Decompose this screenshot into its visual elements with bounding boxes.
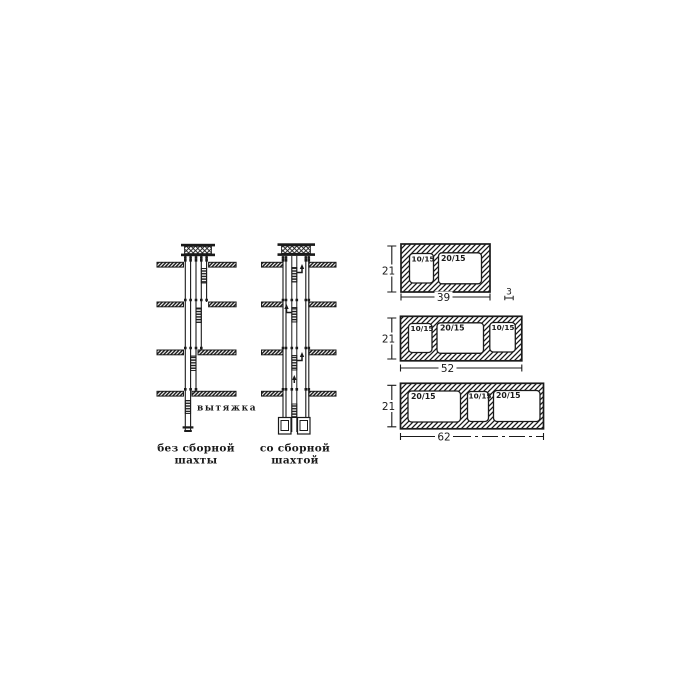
flow-arrow-floor2 <box>284 304 292 313</box>
opening-label: 10/15 <box>411 324 434 333</box>
exhaust-label: вытяжка <box>197 404 257 414</box>
height-dimension: 21 <box>382 318 396 359</box>
opening-label: 20/15 <box>411 392 436 401</box>
floor-slab <box>309 262 336 267</box>
satellite-grilles <box>292 268 297 418</box>
floor-slabs-right-diagram <box>262 262 337 396</box>
floor-slab <box>209 302 237 307</box>
floor-slab <box>157 391 184 396</box>
inlet-grille <box>196 308 201 323</box>
diagram-with-collection-shaft: со сборной шахтой <box>260 243 336 466</box>
dimension-label: 3 <box>506 288 512 298</box>
floor-slab <box>309 391 336 396</box>
floor-slab <box>262 302 284 307</box>
floor-slab <box>262 262 284 267</box>
floor-slab <box>209 262 237 267</box>
floor-slab <box>157 350 184 355</box>
dimension-label: 52 <box>441 363 454 375</box>
ventilation-scheme-figure: вытяжка без сборной шахты <box>0 0 700 700</box>
arrowhead-up <box>292 375 296 380</box>
opening-label: 20/15 <box>440 324 465 333</box>
block-cross-section-2: 10/15 20/15 10/15 21 52 <box>382 316 522 375</box>
flow-arrow-shaft-bottom <box>292 375 296 383</box>
left-diagram-caption-line1: без сборной <box>157 443 235 455</box>
diagram-without-collection-shaft: вытяжка без сборной шахты <box>157 244 257 467</box>
opening-label: 10/15 <box>412 255 435 264</box>
opening-label: 20/15 <box>441 254 466 263</box>
inlet-grille <box>292 268 297 283</box>
dimension-label: 39 <box>437 292 450 304</box>
right-diagram-caption-line2: шахтой <box>271 455 318 467</box>
left-diagram-caption-line2: шахты <box>175 455 218 467</box>
cleanout-boxes <box>279 418 311 435</box>
inlet-grille <box>201 269 206 284</box>
opening-label: 20/15 <box>496 391 521 400</box>
right-diagram-caption-line1: со сборной <box>260 443 330 455</box>
width-dimension: 62 <box>401 431 544 444</box>
inlet-grille <box>292 404 297 417</box>
dimension-label: 21 <box>382 334 395 346</box>
inlet-grille <box>292 356 297 371</box>
block-cross-section-3: 20/15 10/15 20/15 21 62 <box>382 383 544 443</box>
height-dimension: 21 <box>382 246 396 292</box>
floor-slab <box>198 350 236 355</box>
inlet-grille <box>191 356 196 371</box>
arrowhead-up <box>284 304 288 309</box>
exhaust-duct-end <box>183 426 194 432</box>
inlet-grille <box>185 401 190 414</box>
floor-slab <box>157 262 184 267</box>
opening-label: 10/15 <box>469 392 492 401</box>
floor-slab <box>309 302 336 307</box>
inlet-grille <box>292 308 297 323</box>
cleanout-box-inner <box>300 421 308 431</box>
arrowhead-up <box>300 352 304 357</box>
flow-arrow-floor3 <box>297 352 304 361</box>
floor-slab <box>192 391 236 396</box>
block-cross-section-1: 10/15 20/15 21 39 3 <box>382 244 513 304</box>
floor-slab <box>157 302 184 307</box>
floor-slab <box>262 350 284 355</box>
dimension-label: 62 <box>437 432 450 444</box>
width-dimension: 39 <box>401 292 490 305</box>
floor-slab <box>309 350 336 355</box>
cleanout-box-inner <box>281 421 289 431</box>
dimension-label: 21 <box>382 266 395 278</box>
dimension-label: 21 <box>382 401 395 413</box>
flow-arrow-floor1 <box>297 264 304 273</box>
floor-slab <box>262 391 284 396</box>
roof-cap <box>181 244 215 256</box>
scanned-figure-page: вытяжка без сборной шахты <box>0 0 700 700</box>
roof-cap <box>278 243 316 256</box>
arrowhead-up <box>300 264 304 269</box>
width-dimension: 52 <box>401 363 522 376</box>
opening-label: 10/15 <box>492 323 515 332</box>
height-dimension: 21 <box>382 385 396 427</box>
wall-thickness-dimension: 3 <box>505 288 513 301</box>
